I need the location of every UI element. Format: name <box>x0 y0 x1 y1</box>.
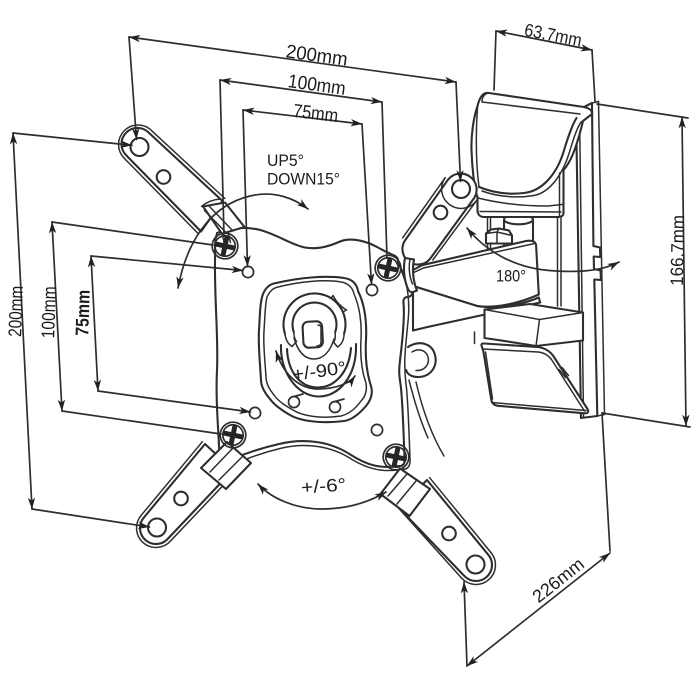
svg-text:200mm: 200mm <box>4 285 27 337</box>
svg-text:75mm: 75mm <box>71 289 94 336</box>
svg-text:166.7mm: 166.7mm <box>667 215 688 286</box>
svg-text:DOWN15°: DOWN15° <box>267 170 340 189</box>
svg-text:+/-6°: +/-6° <box>300 474 346 497</box>
svg-text:180°: 180° <box>496 267 526 286</box>
svg-text:100mm: 100mm <box>37 286 60 339</box>
svg-text:UP5°: UP5° <box>267 151 304 170</box>
